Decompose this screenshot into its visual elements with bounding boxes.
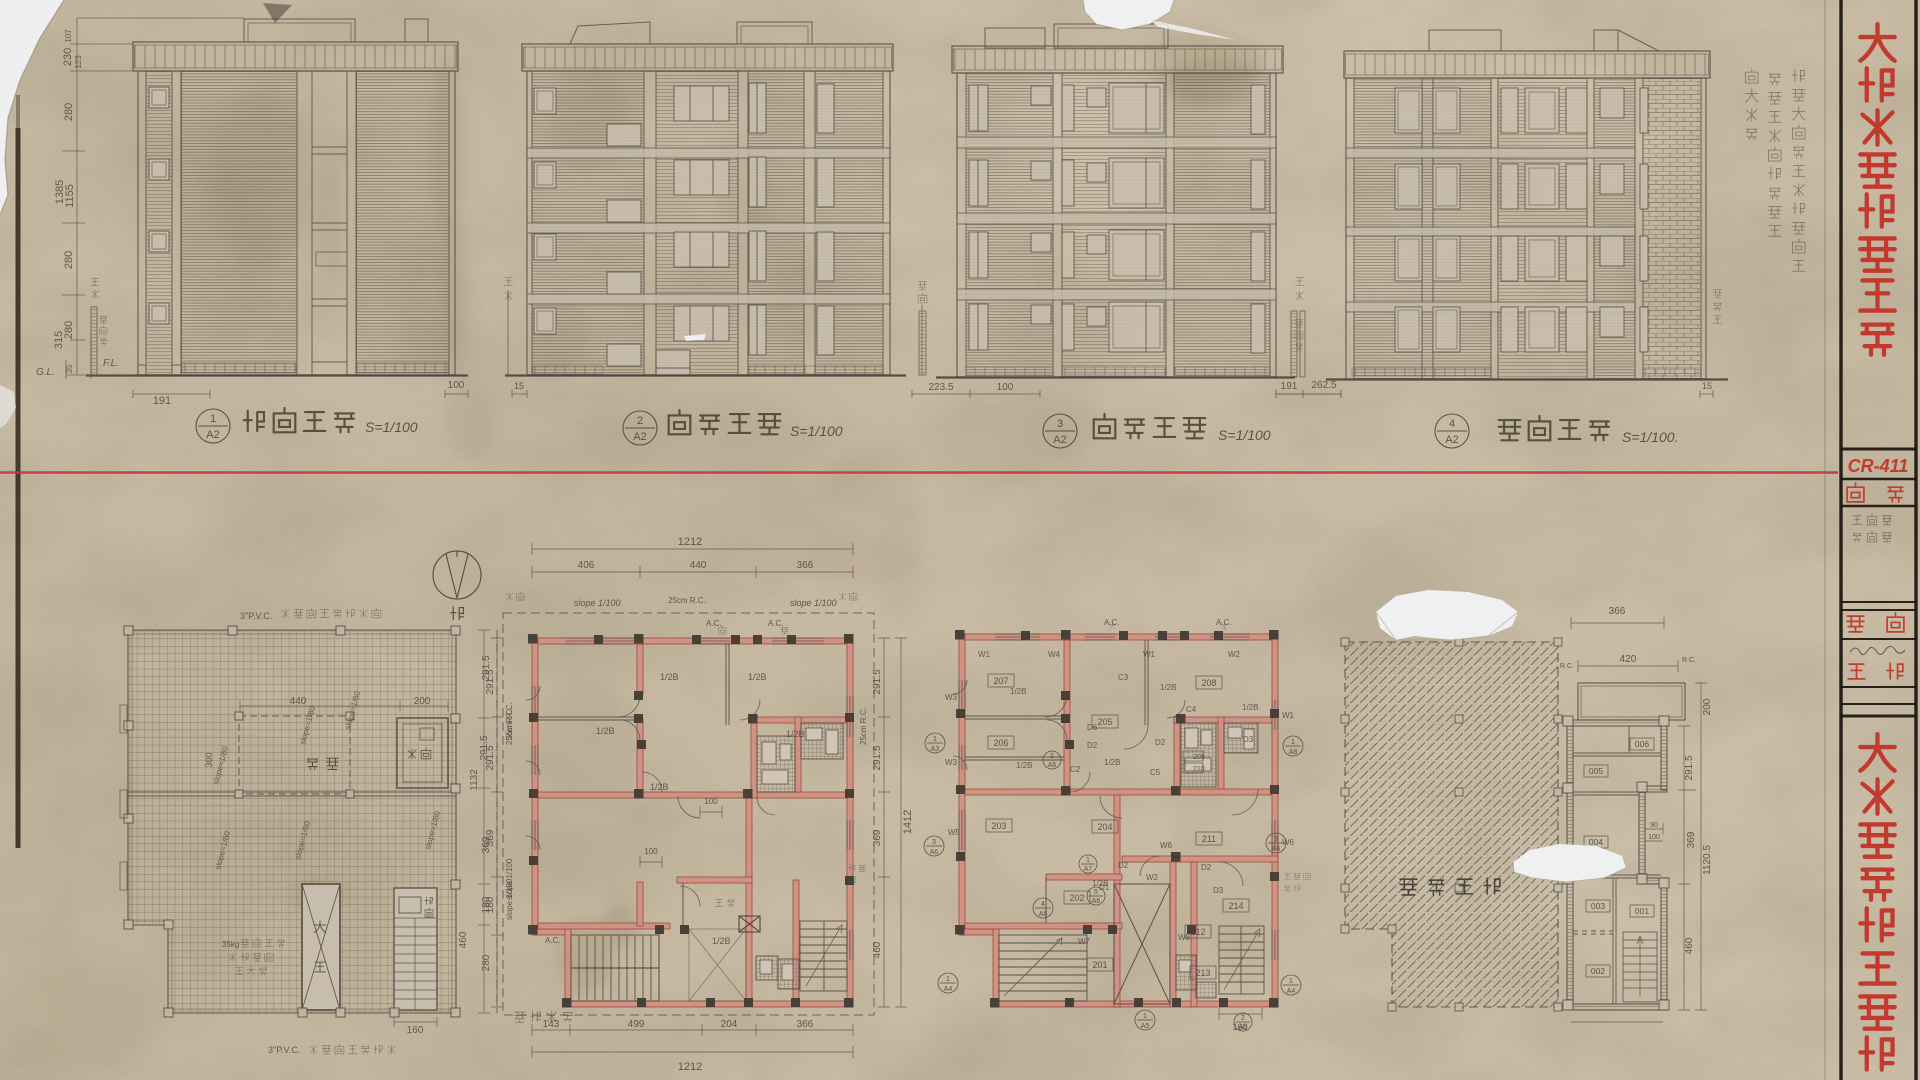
svg-text:212: 212 [1190, 927, 1205, 937]
svg-text:W3: W3 [945, 693, 958, 702]
svg-text:3: 3 [1057, 418, 1063, 430]
svg-text:1132: 1132 [469, 769, 480, 791]
svg-text:223.5: 223.5 [928, 382, 953, 393]
svg-text:A6: A6 [1092, 898, 1101, 905]
svg-text:1/2B: 1/2B [748, 672, 767, 682]
svg-text:A7: A7 [1084, 866, 1093, 873]
svg-text:366: 366 [1609, 606, 1626, 617]
svg-text:211: 211 [1202, 834, 1216, 844]
svg-text:280: 280 [63, 103, 75, 121]
svg-text:1: 1 [1143, 1013, 1147, 1020]
svg-text:4: 4 [1041, 901, 1045, 908]
svg-text:A6: A6 [1039, 911, 1048, 918]
svg-text:C2: C2 [1070, 765, 1081, 774]
svg-text:1: 1 [1289, 978, 1293, 985]
svg-text:1: 1 [1291, 739, 1295, 746]
svg-text:G.L.: G.L. [36, 367, 55, 378]
svg-text:S=1/100.: S=1/100. [1622, 429, 1678, 445]
svg-text:1212: 1212 [678, 1061, 702, 1073]
svg-text:15: 15 [514, 381, 524, 391]
svg-text:005: 005 [1589, 766, 1603, 776]
svg-text:001: 001 [1635, 906, 1649, 916]
svg-text:143: 143 [543, 1019, 560, 1030]
svg-text:369: 369 [485, 829, 496, 846]
svg-text:slope 1/100: slope 1/100 [574, 598, 621, 608]
svg-text:A6: A6 [1048, 762, 1057, 769]
svg-text:2: 2 [1050, 753, 1054, 760]
svg-text:406: 406 [578, 560, 595, 571]
svg-text:291.5: 291.5 [1684, 755, 1695, 780]
svg-text:280: 280 [63, 251, 75, 269]
svg-text:499: 499 [628, 1019, 645, 1030]
svg-text:1: 1 [1086, 857, 1090, 864]
svg-text:191: 191 [1281, 381, 1298, 392]
svg-text:R.C.: R.C. [1560, 663, 1574, 670]
svg-text:D2: D2 [1155, 738, 1166, 747]
svg-text:1/2B: 1/2B [660, 672, 679, 682]
svg-text:W8: W8 [1178, 933, 1191, 942]
svg-text:A5: A5 [1141, 1023, 1150, 1030]
svg-text:100: 100 [704, 797, 718, 806]
svg-text:123: 123 [74, 55, 83, 69]
svg-text:5: 5 [1094, 889, 1098, 896]
svg-text:W1: W1 [1143, 650, 1156, 659]
svg-text:291.5: 291.5 [872, 669, 883, 694]
svg-text:D2: D2 [1087, 741, 1098, 750]
svg-text:A4: A4 [1287, 988, 1296, 995]
svg-text:W5: W5 [948, 828, 961, 837]
svg-text:slope 1/100: slope 1/100 [505, 878, 514, 920]
svg-text:35kg: 35kg [222, 940, 239, 949]
svg-text:D3: D3 [1243, 735, 1254, 744]
svg-text:1/2B: 1/2B [1016, 761, 1032, 770]
svg-text:440: 440 [290, 696, 307, 707]
svg-text:200: 200 [1702, 698, 1713, 715]
svg-text:206: 206 [993, 738, 1008, 748]
svg-text:213: 213 [1195, 968, 1210, 978]
svg-text:291.5: 291.5 [872, 745, 883, 770]
svg-text:208: 208 [1201, 678, 1216, 688]
svg-text:A3: A3 [931, 746, 940, 753]
svg-text:90: 90 [1650, 822, 1658, 829]
svg-text:A6: A6 [930, 849, 939, 856]
svg-text:1/2B: 1/2B [596, 726, 615, 736]
svg-text:004: 004 [1589, 837, 1603, 847]
svg-text:209: 209 [1193, 754, 1205, 761]
svg-text:003: 003 [1591, 901, 1605, 911]
svg-text:S=1/100: S=1/100 [790, 423, 843, 439]
svg-text:002: 002 [1591, 966, 1605, 976]
svg-text:W2: W2 [1146, 873, 1159, 882]
svg-text:369: 369 [872, 829, 883, 846]
svg-text:5: 5 [1274, 836, 1278, 843]
svg-text:1: 1 [210, 413, 216, 425]
svg-text:1/2B: 1/2B [1104, 758, 1120, 767]
svg-text:C5: C5 [1150, 768, 1161, 777]
svg-text:3: 3 [932, 839, 936, 846]
svg-text:1412: 1412 [902, 810, 914, 834]
svg-text:A.C.: A.C. [545, 936, 561, 945]
svg-text:204: 204 [721, 1019, 738, 1030]
svg-text:460: 460 [872, 941, 883, 958]
svg-text:369: 369 [1686, 831, 1697, 848]
svg-text:300: 300 [204, 752, 214, 767]
svg-text:205: 205 [1097, 717, 1112, 727]
svg-text:204: 204 [1097, 822, 1112, 832]
svg-text:A2: A2 [633, 431, 646, 443]
svg-text:366: 366 [797, 1019, 814, 1030]
svg-text:slope 1/100: slope 1/100 [790, 598, 837, 608]
svg-text:C4: C4 [1186, 705, 1197, 714]
svg-text:1/2B: 1/2B [1242, 703, 1258, 712]
svg-text:160: 160 [1232, 1022, 1247, 1032]
svg-text:201: 201 [1092, 960, 1107, 970]
svg-text:100: 100 [644, 847, 658, 856]
svg-text:1/2B: 1/2B [650, 782, 669, 792]
svg-text:200: 200 [414, 696, 431, 707]
svg-text:107: 107 [64, 29, 73, 43]
svg-text:202: 202 [1069, 893, 1084, 903]
svg-text:180: 180 [485, 896, 496, 913]
svg-text:A8: A8 [1289, 749, 1298, 756]
svg-text:207: 207 [993, 676, 1008, 686]
svg-text:1155: 1155 [64, 184, 76, 208]
svg-text:1: 1 [946, 976, 950, 983]
svg-text:W6: W6 [1160, 841, 1173, 850]
svg-text:006: 006 [1635, 739, 1649, 749]
svg-text:210: 210 [1193, 766, 1205, 773]
svg-text:291.5: 291.5 [485, 669, 496, 694]
svg-text:460: 460 [458, 931, 469, 948]
svg-text:35: 35 [65, 364, 74, 373]
svg-text:2: 2 [1241, 1015, 1245, 1022]
svg-text:1/2B: 1/2B [1092, 879, 1108, 888]
svg-text:W7: W7 [1078, 937, 1091, 946]
svg-text:W4: W4 [1048, 650, 1061, 659]
svg-text:1212: 1212 [678, 536, 702, 548]
svg-text:CR-411: CR-411 [1848, 456, 1909, 476]
svg-text:100: 100 [1648, 834, 1660, 841]
svg-text:A6: A6 [1272, 846, 1281, 853]
svg-text:A4: A4 [944, 986, 953, 993]
svg-text:203: 203 [991, 821, 1006, 831]
svg-text:C3: C3 [1118, 673, 1129, 682]
svg-text:W1: W1 [1282, 711, 1295, 720]
svg-text:262.5: 262.5 [1311, 380, 1336, 391]
svg-text:A.C.: A.C. [706, 619, 722, 628]
svg-text:A2: A2 [1053, 434, 1066, 446]
svg-text:1/2B: 1/2B [786, 729, 805, 739]
svg-text:S=1/100: S=1/100 [1218, 427, 1271, 443]
svg-text:A2: A2 [1445, 434, 1458, 446]
svg-text:3"P.V.C.: 3"P.V.C. [268, 1045, 300, 1055]
svg-text:A.C.: A.C. [768, 619, 784, 628]
svg-text:100: 100 [448, 380, 465, 391]
svg-text:25cm R.C.: 25cm R.C. [668, 596, 706, 605]
svg-text:A2: A2 [206, 429, 219, 441]
svg-text:D2: D2 [1118, 861, 1129, 870]
svg-text:3"P.V.C.: 3"P.V.C. [240, 611, 272, 621]
svg-text:W3: W3 [945, 758, 958, 767]
svg-text:W2: W2 [1228, 650, 1241, 659]
svg-text:25cm R.C.: 25cm R.C. [505, 707, 514, 745]
svg-text:1/2B: 1/2B [1160, 683, 1176, 692]
svg-text:D3: D3 [1213, 886, 1224, 895]
svg-text:160: 160 [407, 1025, 424, 1036]
svg-text:S=1/100: S=1/100 [365, 419, 418, 435]
svg-text:366: 366 [797, 560, 814, 571]
svg-text:440: 440 [690, 560, 707, 571]
svg-text:D6: D6 [1087, 723, 1098, 732]
svg-text:1/2B: 1/2B [712, 936, 731, 946]
svg-text:F.L.: F.L. [103, 358, 119, 369]
svg-text:W6: W6 [1282, 838, 1295, 847]
svg-text:R.C.: R.C. [1682, 657, 1696, 664]
svg-text:W1: W1 [978, 650, 991, 659]
svg-text:230: 230 [62, 48, 74, 66]
svg-text:15: 15 [1702, 381, 1712, 391]
svg-text:100: 100 [997, 382, 1014, 393]
svg-text:4: 4 [1449, 418, 1455, 430]
svg-text:25cm R.C.: 25cm R.C. [859, 707, 868, 745]
svg-text:D2: D2 [1201, 863, 1212, 872]
svg-text:1: 1 [933, 736, 937, 743]
svg-text:460: 460 [1684, 937, 1695, 954]
svg-text:280: 280 [481, 954, 492, 971]
svg-text:1120.5: 1120.5 [1702, 845, 1713, 875]
svg-text:291.5: 291.5 [485, 745, 496, 770]
svg-text:280: 280 [63, 321, 75, 339]
svg-text:191: 191 [153, 395, 171, 407]
svg-text:214: 214 [1228, 901, 1243, 911]
svg-text:2: 2 [637, 415, 643, 427]
svg-text:420: 420 [1620, 654, 1637, 665]
svg-text:1/2B: 1/2B [1010, 687, 1026, 696]
